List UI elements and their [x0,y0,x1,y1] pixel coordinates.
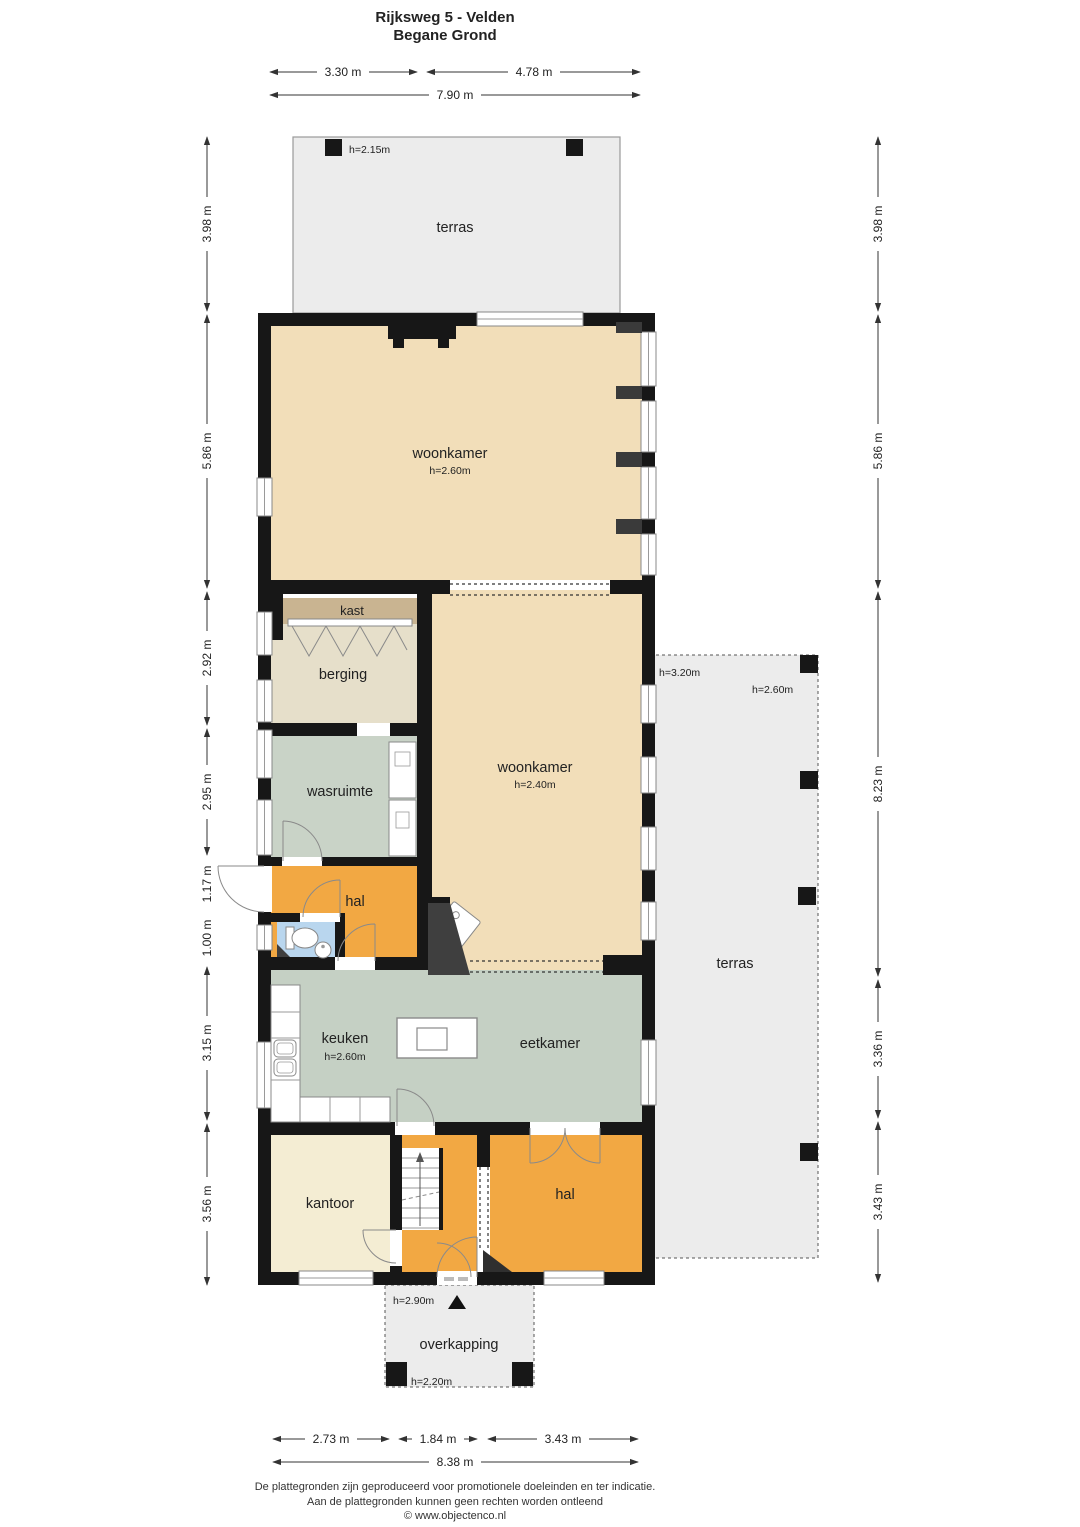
overkapping-post-right [512,1362,533,1386]
terras-right-post-3 [798,887,816,905]
overkapping: h=2.90m h=2.20m overkapping [385,1285,534,1388]
woonkamer-1-height: h=2.60m [429,465,470,477]
dim-top-total: 7.90 m [437,88,474,102]
toilet-bowl-icon [292,928,318,948]
dim-left-3: 2.92 m [200,640,214,677]
floorplan-svg: Rijksweg 5 - Velden Begane Grond h=2.15m… [0,0,1080,1527]
kitchen-counter-bottom [300,1097,390,1122]
terras-top-height-label: h=2.15m [349,144,390,156]
dim-bottom-1: 2.73 m [313,1432,350,1446]
woonkamer-2-height: h=2.40m [514,779,555,791]
overkapping-height-post-label: h=2.20m [411,1376,452,1388]
keuken-label: keuken [322,1031,369,1047]
kantoor-label: kantoor [306,1196,355,1212]
plan-title: Rijksweg 5 - Velden [375,9,514,26]
dim-left-6: 1.00 m [200,920,214,957]
dim-right-5: 3.43 m [871,1184,885,1221]
terras-top-post-left [325,139,342,156]
dim-left-2: 5.86 m [200,433,214,470]
dim-bottom-2: 1.84 m [420,1432,457,1446]
dim-right-2: 5.86 m [871,433,885,470]
terras-top: h=2.15m terras [293,137,620,313]
plan-subtitle: Begane Grond [393,27,496,44]
footer-line-1: De plattegronden zijn geproduceerd voor … [255,1481,656,1493]
room-hal-2 [490,1135,642,1272]
dim-left-5: 1.17 m [200,866,214,903]
dim-left-1: 3.98 m [200,206,214,243]
footer-line-2: Aan de plattegronden kunnen geen rechten… [307,1496,603,1508]
footer-line-3: © www.objectenco.nl [404,1510,506,1522]
terras-right-post-1 [800,655,818,673]
dim-left-8: 3.56 m [200,1186,214,1223]
washer-icon [389,742,416,798]
woonkamer-2-label: woonkamer [497,760,573,776]
dim-right-3: 8.23 m [871,766,885,803]
radiator-icon [616,386,642,399]
terras-right-post-4 [800,1143,818,1161]
terras-right-label: terras [716,956,753,972]
radiator-icon [616,519,642,534]
dim-bottom-3: 3.43 m [545,1432,582,1446]
dim-top-2: 4.78 m [516,65,553,79]
staircase [402,1148,443,1230]
kast-label: kast [340,603,364,618]
terras-right-height-post-label: h=2.60m [752,684,793,696]
dim-right-4: 3.36 m [871,1031,885,1068]
berging-label: berging [319,667,367,683]
keuken-height: h=2.60m [324,1051,365,1063]
terras-top-post-right [566,139,583,156]
radiator-icon [616,322,642,333]
radiator-icon [616,452,642,467]
dim-left-4: 2.95 m [200,774,214,811]
dim-left-7: 3.15 m [200,1025,214,1062]
overkapping-post-left [386,1362,407,1386]
terras-top-label: terras [436,220,473,236]
eetkamer-label: eetkamer [520,1036,581,1052]
woonkamer-1-label: woonkamer [412,446,488,462]
wasruimte-label: wasruimte [306,784,373,800]
overkapping-height-top-label: h=2.90m [393,1295,434,1307]
overkapping-label: overkapping [420,1337,499,1353]
dim-top-1: 3.30 m [325,65,362,79]
dim-right-1: 3.98 m [871,206,885,243]
hal-2-label: hal [555,1187,574,1203]
dim-bottom-total: 8.38 m [437,1455,474,1469]
toilet-sink-icon [315,942,331,958]
kitchen-island [397,1018,477,1058]
terras-right-height-wall-label: h=3.20m [659,667,700,679]
hal-1-label: hal [345,894,364,910]
kast-sill [288,619,412,626]
terras-right-post-2 [800,771,818,789]
floorplan-page: Rijksweg 5 - Velden Begane Grond h=2.15m… [0,0,1080,1527]
terras-right: h=3.20m h=2.60m terras [650,655,818,1258]
